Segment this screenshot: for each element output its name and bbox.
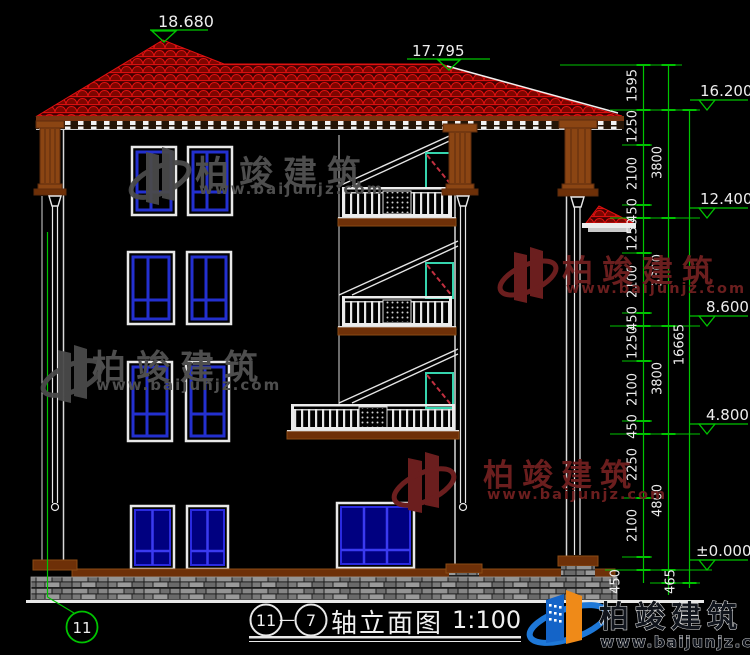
title-name: 轴立面图 (331, 603, 443, 640)
eave-elevation-label: 17.795 (412, 42, 465, 60)
watermark-url-4: www.baijunjz.com (487, 487, 667, 503)
elevation-12400: 12.400 (700, 190, 750, 208)
column-left (34, 121, 66, 511)
brand-logo-tower-orange (566, 590, 582, 644)
watermark-url-1: www.baijunjz.com (199, 180, 384, 198)
window (187, 506, 228, 569)
elevation-drawing-canvas: 柏竣建筑 www.baijunjz.com 18.680 17.795 16.2… (0, 0, 750, 655)
brand-logo-tower-blue (546, 594, 564, 643)
door (426, 373, 453, 408)
pipe-outlet (460, 504, 467, 511)
roof (36, 40, 624, 130)
pedestal-left (33, 560, 77, 570)
watermark-url-3: www.baijunjz.com (566, 281, 746, 297)
dim-3800: 3800 (651, 344, 666, 414)
balcony (287, 404, 459, 439)
rain-hopper (571, 197, 584, 207)
elevation-16200: 16.200 (700, 82, 750, 100)
elevation-4800: 4.800 (706, 406, 749, 424)
peak-elevation-label: 18.680 (158, 12, 214, 31)
rain-hopper (49, 196, 61, 206)
balconies (287, 187, 459, 439)
brand-logo: 柏竣建筑 www.baijunjz.com (525, 590, 750, 651)
window (187, 252, 231, 324)
title-bubble-11: 11 (251, 611, 281, 630)
title-bubble-7: 7 (296, 611, 326, 630)
watermark-logo-4 (389, 452, 459, 513)
window (128, 252, 174, 324)
door (426, 263, 453, 298)
window (131, 506, 174, 569)
eave-dentils (36, 121, 624, 129)
windows-ground (131, 503, 414, 569)
watermark-url-2: www.baijunjz.com (96, 376, 281, 394)
window-large (337, 503, 414, 568)
rain-hopper (457, 196, 469, 206)
title-dash: — (279, 610, 295, 629)
elevation-0000: ±0.000 (696, 542, 750, 560)
watermark-logo-3 (495, 247, 560, 303)
eave-fascia (36, 116, 624, 121)
dim-450: 450 (609, 547, 624, 617)
pedestal-right (558, 556, 598, 566)
dim-total-16665: 16665 (673, 310, 688, 380)
title-scale: 1:100 (452, 606, 521, 634)
brand-url-logo-text: www.baijunjz.com (600, 633, 750, 651)
balcony (338, 296, 456, 335)
stone-base (31, 577, 617, 600)
dim-465: 465 (664, 547, 679, 617)
pedestal-middle (446, 564, 482, 573)
axis-bubble-label: 11 (70, 619, 94, 637)
pipe-outlet (52, 504, 59, 511)
elevation-8600: 8.600 (706, 298, 749, 316)
dim-3800: 3800 (651, 128, 666, 198)
